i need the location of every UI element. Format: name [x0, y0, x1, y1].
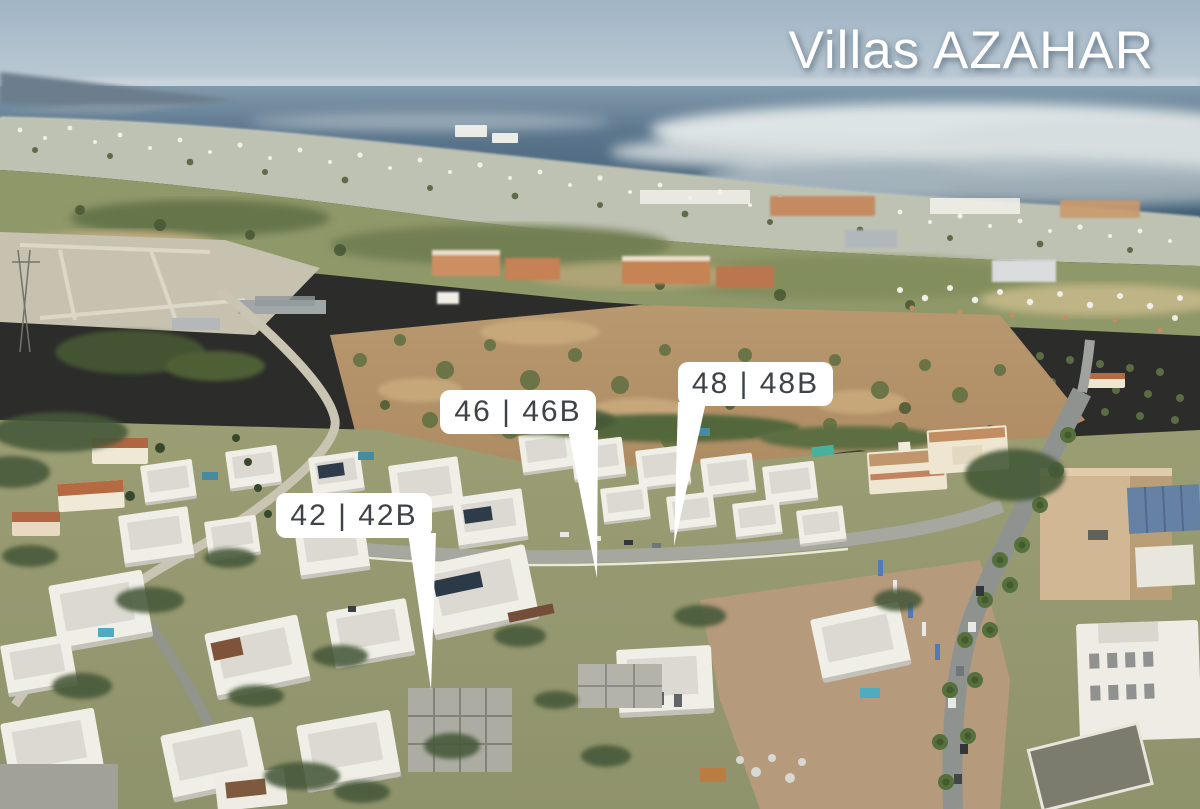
- plot-label-text: 48 | 48B: [692, 367, 819, 401]
- aerial-photo-poster: Villas AZAHAR 42 | 42B 46 | 46B 48 | 48B: [0, 0, 1200, 809]
- plot-label-text: 42 | 42B: [290, 499, 417, 533]
- project-title: Villas AZAHAR: [789, 20, 1154, 81]
- aerial-photo: [0, 0, 1200, 809]
- plot-label-46-46b: 46 | 46B: [440, 390, 596, 434]
- light-wash: [0, 0, 1200, 809]
- plot-label-42-42b: 42 | 42B: [276, 493, 432, 538]
- plot-label-text: 46 | 46B: [454, 395, 581, 429]
- plot-label-48-48b: 48 | 48B: [678, 362, 833, 406]
